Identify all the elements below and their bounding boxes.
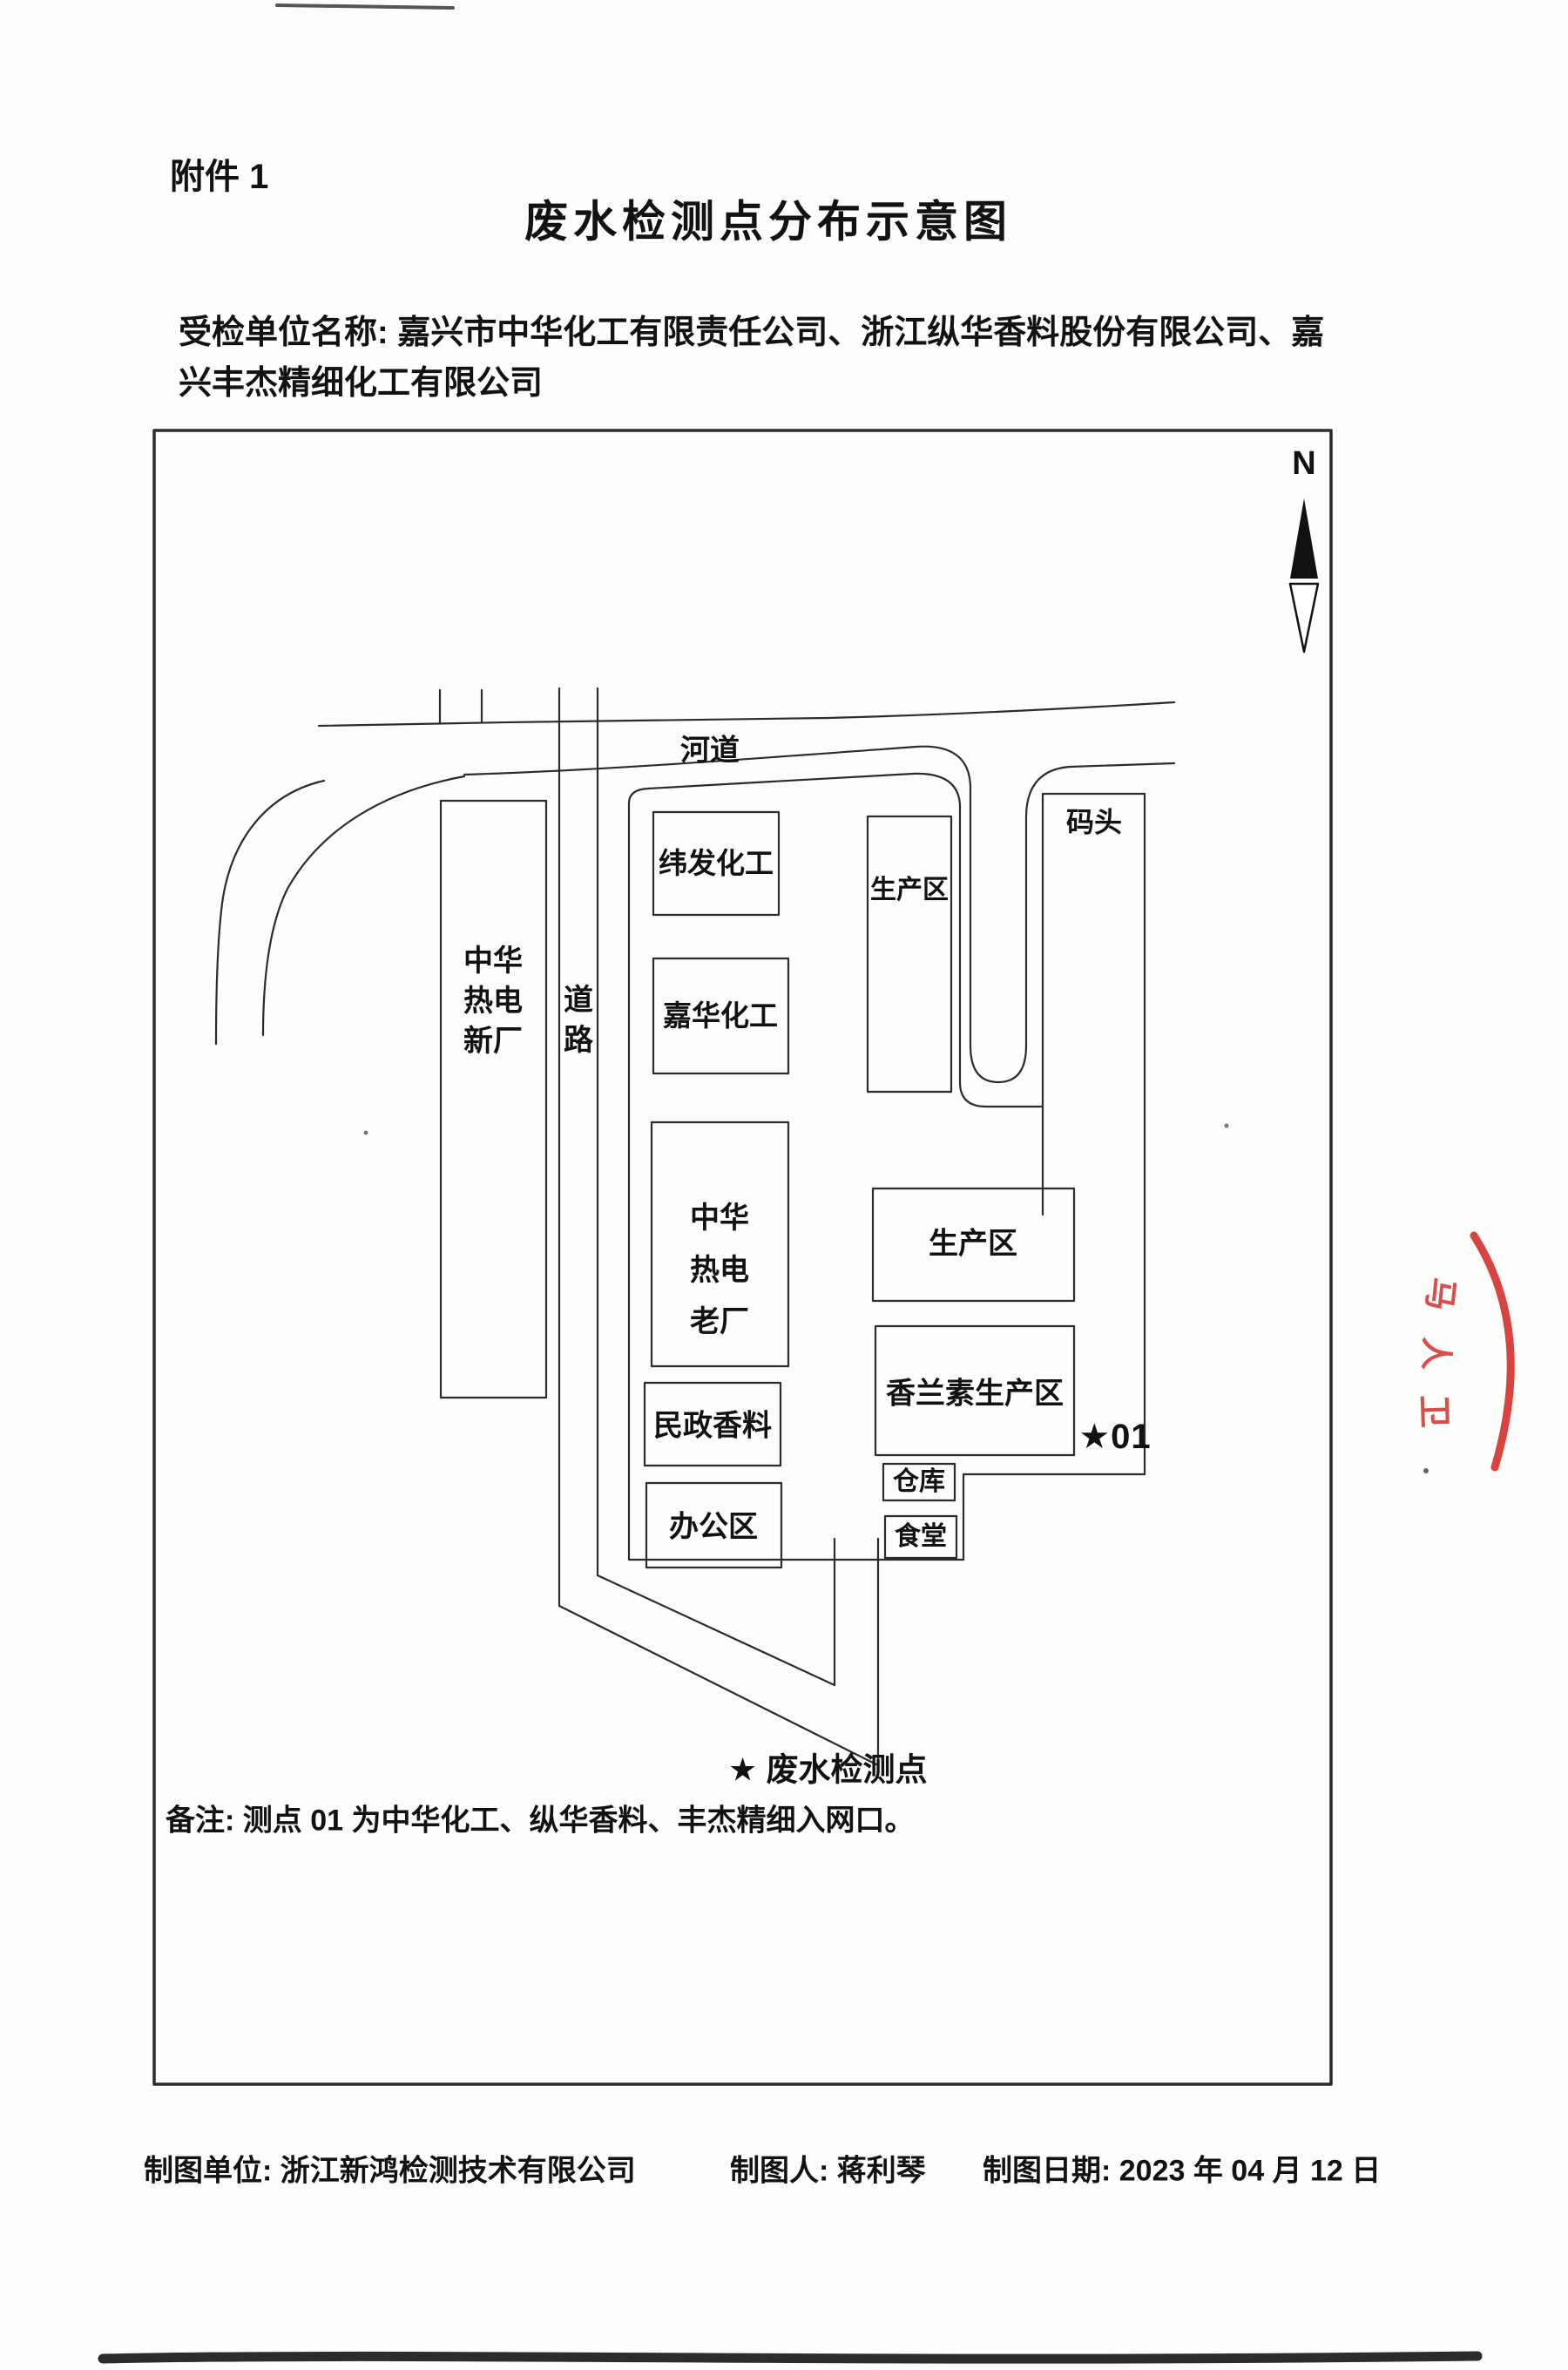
canteen-label: 食堂	[895, 1522, 947, 1553]
production-area-mid-label: 生产区	[929, 1227, 1017, 1261]
compound-boundary-southeast-step	[963, 1474, 1145, 1560]
red-seal-arc	[1474, 1236, 1511, 1467]
scan-artifact-top	[277, 5, 453, 8]
warehouse-label: 仓库	[893, 1467, 945, 1498]
footer-drawing-unit: 制图单位: 浙江新鸿检测技术有限公司	[144, 2154, 636, 2188]
building-zhonghua-new-box	[441, 801, 546, 1398]
note-text: 备注: 测点 01 为中华化工、纵华香料、丰杰精细入网口。	[166, 1804, 914, 1838]
building-weifa-label: 纬发化工	[659, 847, 774, 880]
attachment-label: 附件 1	[170, 157, 268, 197]
exit-road-diagonals	[559, 1575, 878, 1765]
footer-date: 制图日期: 2023 年 04 月 12 日	[983, 2154, 1381, 2188]
north-label: N	[1292, 445, 1315, 484]
legend-wastewater-point: ★ 废水检测点	[728, 1752, 927, 1790]
dock-area-outline	[1043, 794, 1145, 1474]
vanillin-production-label: 香兰素生产区	[886, 1377, 1064, 1411]
left-curved-road-outer	[216, 781, 324, 1044]
north-arrow-icon	[1290, 498, 1318, 652]
scan-speck	[364, 1131, 368, 1135]
production-area-north-label: 生产区	[870, 876, 949, 906]
site-map-drawing	[0, 0, 1568, 2370]
page-title: 废水检测点分布示意图	[524, 197, 1012, 247]
seal-character: 人	[1415, 1337, 1463, 1371]
scan-artifact-bottom	[103, 2356, 1477, 2359]
inspected-org-line1: 受检单位名称: 嘉兴市中华化工有限责任公司、浙江纵华香料股份有限公司、嘉	[179, 315, 1324, 353]
river-label: 河道	[680, 734, 740, 768]
river-north-bank	[319, 702, 1174, 726]
dock-label: 码头	[1066, 807, 1122, 839]
building-zhonghua-new-label: 中华 热电 新厂	[463, 942, 523, 1062]
gate-lines	[835, 1539, 878, 1765]
scanned-document-page: 附件 1 废水检测点分布示意图 受检单位名称: 嘉兴市中华化工有限责任公司、浙江…	[0, 0, 1568, 2370]
seal-character: 马	[1418, 1276, 1470, 1314]
left-curved-road-inner	[263, 776, 464, 1035]
footer-drafter: 制图人: 蒋利琴	[730, 2154, 926, 2188]
north-shore-road-stubs	[440, 690, 482, 723]
building-zhonghua-old-label: 中华 热电 老厂	[690, 1193, 749, 1349]
building-minzheng-label: 民政香料	[653, 1409, 772, 1443]
monitor-point-01-marker: ★01	[1078, 1417, 1151, 1457]
main-road-lines	[559, 688, 598, 1606]
inspected-org-line2: 兴丰杰精细化工有限公司	[179, 365, 543, 403]
production-area-north-box	[868, 816, 951, 1092]
seal-character: 卫	[1413, 1394, 1462, 1429]
building-jiahua-label: 嘉华化工	[663, 999, 778, 1033]
scan-speck	[1423, 1468, 1429, 1473]
scan-speck	[1225, 1124, 1229, 1128]
road-label: 道 路	[564, 981, 593, 1061]
building-office-label: 办公区	[669, 1510, 758, 1544]
